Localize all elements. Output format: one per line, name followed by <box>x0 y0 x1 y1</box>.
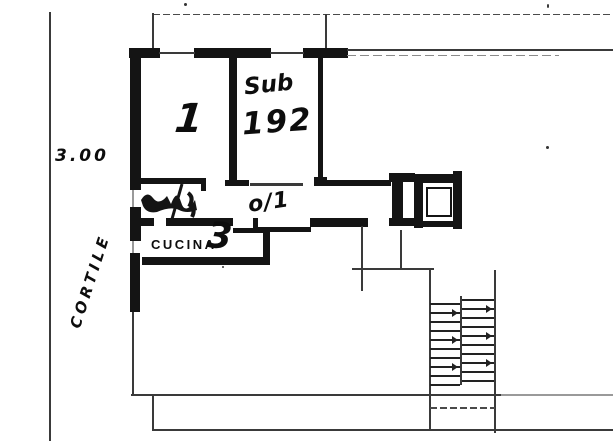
elevator-jamb-bottom <box>389 218 415 226</box>
opening-line <box>132 190 134 207</box>
stair-tread <box>430 303 460 305</box>
stair-tread <box>462 353 494 355</box>
stair-tread <box>462 299 494 301</box>
courtyard-label: CORTILE <box>63 221 117 341</box>
corridor-mark-label: o/1 <box>246 187 291 218</box>
wall-kitchen-bottom <box>142 257 270 265</box>
wall-left-segment <box>130 253 140 312</box>
window-line <box>270 52 304 54</box>
wall-left-thin-extension <box>132 312 134 396</box>
stair-tread <box>462 380 494 382</box>
elevator-shaft-left <box>414 174 423 228</box>
floor-plan-canvas: 3.00 CORTILE 1 Sub 192 o/1 CUCINA 3 <box>0 0 613 441</box>
landing-line-horizontal <box>352 268 434 270</box>
stair-tread <box>462 317 494 319</box>
elevator-car-outline <box>426 187 452 217</box>
stair-tread <box>462 308 494 310</box>
stair-tread <box>430 321 460 323</box>
stair-tread <box>462 362 494 364</box>
bottom-line-2 <box>152 429 613 431</box>
ink-dot <box>184 3 187 6</box>
stair-tread <box>430 348 460 350</box>
sub-label: Sub <box>243 69 295 100</box>
wall-corridor-top <box>225 180 249 186</box>
stair-rail-left <box>429 270 431 430</box>
stair-tread <box>462 344 494 346</box>
stair-tread <box>462 335 494 337</box>
facade-line-right-2 <box>347 55 559 56</box>
dimension-label: 3.00 <box>55 146 109 166</box>
wall-corridor-thin <box>250 183 303 186</box>
window-line <box>159 52 195 54</box>
room-number-label: 1 <box>173 96 206 142</box>
wall-room-divider <box>229 57 237 184</box>
ink-dot <box>547 4 549 8</box>
stair-tread <box>430 339 460 341</box>
ink-dot <box>222 266 224 268</box>
stair-tread <box>430 330 460 332</box>
elevator-jamb-stem <box>392 182 403 218</box>
facade-line-right <box>347 49 613 51</box>
courtyard-boundary-line <box>49 12 51 441</box>
wall-hall-top <box>323 180 391 186</box>
elevator-jamb-top <box>389 173 415 182</box>
wall-hall-low <box>310 218 368 227</box>
partition-line-vertical <box>361 226 363 291</box>
stair-tread <box>462 326 494 328</box>
bathroom-fixture-scribble-icon <box>136 183 212 223</box>
elevator-shaft-bottom <box>414 221 462 227</box>
stair-tread <box>430 366 460 368</box>
wall-corridor-low <box>253 227 311 232</box>
wall-top-segment <box>303 48 348 58</box>
bottom-connector <box>152 394 154 431</box>
opening-line <box>132 241 134 253</box>
balcony-tick-mid <box>325 14 327 50</box>
bottom-line-1 <box>131 394 501 396</box>
stair-tread <box>430 384 460 386</box>
stair-tread <box>430 375 460 377</box>
partition-line-vertical-2 <box>400 230 402 270</box>
stair-tread <box>430 357 460 359</box>
balcony-tick-left <box>152 13 154 50</box>
wall-sub-room-right <box>318 50 323 186</box>
stair-tread <box>462 371 494 373</box>
ink-dot <box>546 146 549 149</box>
sub-number-label: 192 <box>241 102 314 143</box>
kitchen-number-label: 3 <box>205 215 234 258</box>
balcony-top-line <box>153 14 613 15</box>
stair-tread <box>430 312 460 314</box>
stair-landing-line <box>430 407 495 409</box>
wall-left-segment <box>130 48 141 190</box>
bottom-line-1-faint <box>501 394 613 396</box>
